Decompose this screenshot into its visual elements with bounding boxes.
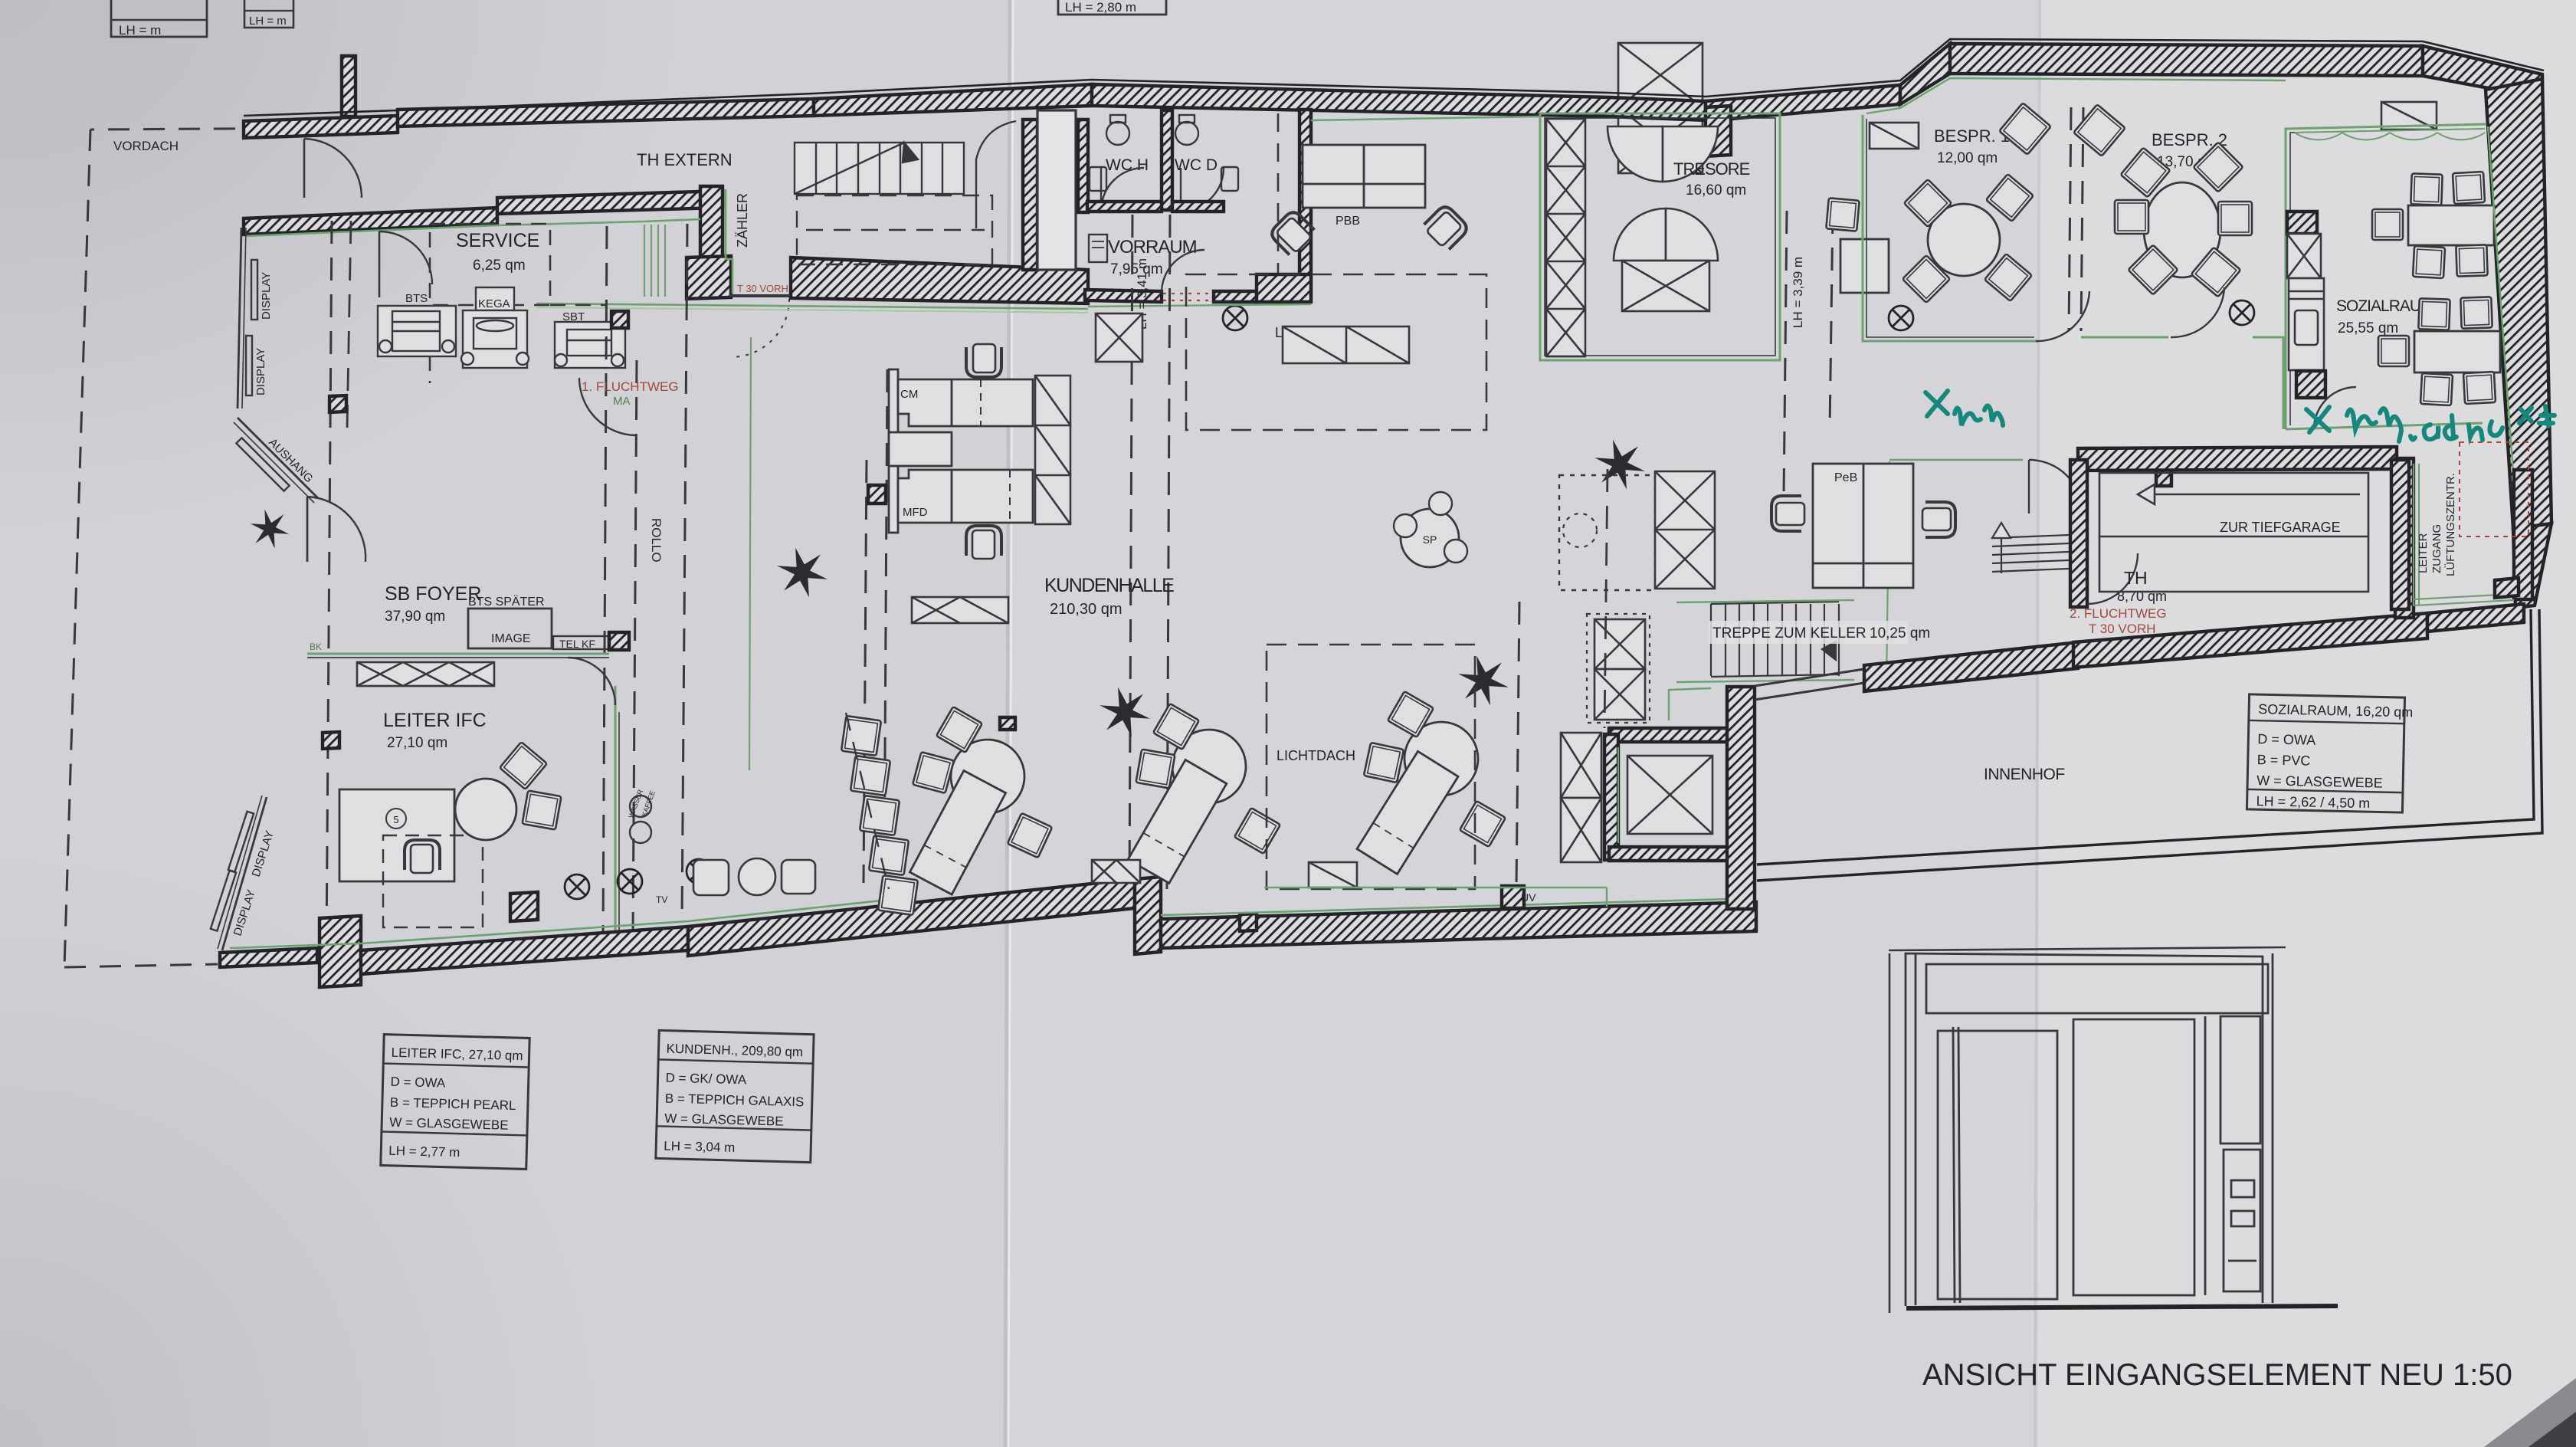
svg-text:TEL KF: TEL KF bbox=[559, 638, 595, 650]
svg-text:37,90 qm: 37,90 qm bbox=[385, 609, 445, 625]
svg-text:25,55 qm: 25,55 qm bbox=[2338, 320, 2398, 336]
svg-text:ROLLO: ROLLO bbox=[649, 518, 664, 563]
svg-text:D = GK/ OWA: D = GK/ OWA bbox=[665, 1071, 747, 1088]
svg-text:SOZIALRAUM, 16,20 qm: SOZIALRAUM, 16,20 qm bbox=[2258, 701, 2413, 720]
svg-text:B = PVC: B = PVC bbox=[2257, 752, 2311, 768]
svg-text:LÜFTUNGSZENTR.: LÜFTUNGSZENTR. bbox=[2443, 473, 2457, 576]
svg-text:D = OWA: D = OWA bbox=[390, 1075, 446, 1091]
svg-text:ZÄHLER: ZÄHLER bbox=[735, 193, 750, 248]
svg-text:10,25 qm: 10,25 qm bbox=[1870, 625, 1930, 641]
svg-text:LH = 2,80 m: LH = 2,80 m bbox=[1065, 0, 1136, 15]
svg-text:TH EXTERN: TH EXTERN bbox=[637, 150, 732, 169]
svg-text:VORDACH: VORDACH bbox=[113, 139, 179, 153]
svg-text:CM: CM bbox=[900, 388, 918, 401]
svg-text:SBT: SBT bbox=[562, 310, 585, 323]
svg-text:ANSICHT EINGANGSELEMENT NEU 1: ANSICHT EINGANGSELEMENT NEU 1:50 bbox=[1922, 1358, 2512, 1392]
svg-text:PeB: PeB bbox=[1834, 471, 1857, 484]
svg-text:LH = 2,62 / 4,50 m: LH = 2,62 / 4,50 m bbox=[2256, 793, 2370, 811]
svg-text:DISPLAY: DISPLAY bbox=[254, 348, 267, 395]
svg-text:D = OWA: D = OWA bbox=[2257, 731, 2315, 748]
svg-text:LH = 3,04 m: LH = 3,04 m bbox=[664, 1139, 736, 1155]
svg-text:UV: UV bbox=[1521, 891, 1536, 904]
svg-text:TH: TH bbox=[2124, 568, 2148, 588]
svg-text:5: 5 bbox=[393, 814, 398, 825]
svg-text:BTS SPÄTER: BTS SPÄTER bbox=[468, 595, 545, 609]
svg-text:LH = m: LH = m bbox=[249, 15, 287, 28]
svg-text:T 30 VORH: T 30 VORH bbox=[2089, 622, 2156, 636]
svg-text:MFD: MFD bbox=[903, 506, 928, 519]
svg-text:LEITER: LEITER bbox=[2417, 533, 2430, 573]
svg-text:BK: BK bbox=[310, 641, 322, 652]
svg-text:27,10 qm: 27,10 qm bbox=[387, 735, 447, 751]
svg-text:KUNDENHALLE: KUNDENHALLE bbox=[1044, 575, 1174, 596]
svg-text:DISPLAY: DISPLAY bbox=[260, 272, 273, 320]
svg-text:16,60 qm: 16,60 qm bbox=[1686, 182, 1746, 199]
svg-text:W = GLASGEWEBE: W = GLASGEWEBE bbox=[664, 1111, 784, 1129]
svg-text:BESPR. 1: BESPR. 1 bbox=[1934, 126, 2010, 146]
svg-text:IMAGE: IMAGE bbox=[491, 632, 531, 645]
svg-text:INNENHOF: INNENHOF bbox=[1984, 766, 2065, 783]
svg-text:SB FOYER: SB FOYER bbox=[385, 583, 481, 605]
svg-text:LEITER IFC: LEITER IFC bbox=[383, 710, 487, 731]
svg-text:LH = 3,39 m: LH = 3,39 m bbox=[1791, 257, 1805, 328]
svg-text:W = GLASGEWEBE: W = GLASGEWEBE bbox=[2256, 773, 2383, 790]
svg-text:1. FLUCHTWEG: 1. FLUCHTWEG bbox=[582, 379, 679, 394]
svg-text:12,00 qm: 12,00 qm bbox=[1937, 150, 1998, 166]
svg-text:ZUGANG: ZUGANG bbox=[2430, 524, 2443, 573]
svg-text:TREPPE ZUM KELLER: TREPPE ZUM KELLER bbox=[1712, 625, 1866, 641]
svg-text:TRESORE: TRESORE bbox=[1673, 159, 1750, 179]
svg-text:T 30 VORH: T 30 VORH bbox=[737, 283, 788, 294]
svg-text:6,25 qm: 6,25 qm bbox=[473, 258, 526, 274]
svg-text:210,30 qm: 210,30 qm bbox=[1050, 601, 1122, 618]
svg-text:LH = 2,77 m: LH = 2,77 m bbox=[388, 1143, 460, 1160]
svg-text:W = GLASGEWEBE: W = GLASGEWEBE bbox=[389, 1115, 509, 1133]
svg-text:SP: SP bbox=[1423, 533, 1437, 546]
svg-text:BTS: BTS bbox=[405, 292, 428, 305]
svg-text:PBB: PBB bbox=[1336, 215, 1360, 228]
svg-text:SERVICE: SERVICE bbox=[456, 230, 539, 251]
svg-text:KEGA: KEGA bbox=[478, 297, 510, 310]
svg-text:TV: TV bbox=[656, 894, 667, 905]
svg-text:LICHTDACH: LICHTDACH bbox=[1277, 748, 1355, 763]
svg-text:ZUR TIEFGARAGE: ZUR TIEFGARAGE bbox=[2220, 520, 2341, 535]
svg-text:LH = m: LH = m bbox=[119, 23, 161, 38]
svg-text:2. FLUCHTWEG: 2. FLUCHTWEG bbox=[2070, 606, 2167, 621]
svg-text:MA: MA bbox=[613, 395, 631, 408]
